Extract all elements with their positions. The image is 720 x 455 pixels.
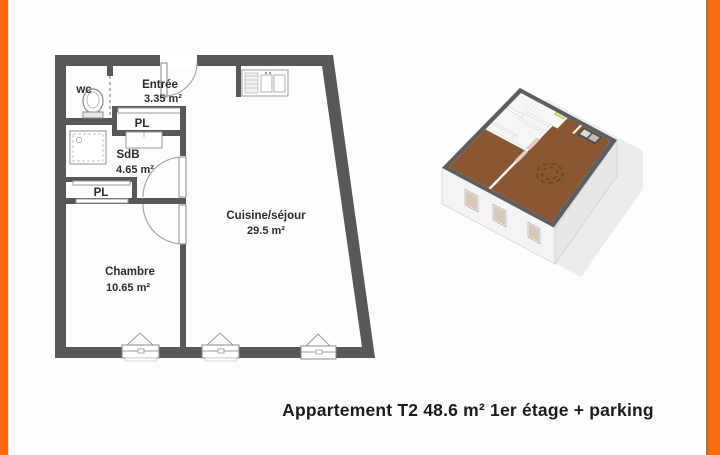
room-label-chambre: Chambre <box>105 266 155 278</box>
floor-plan-3d <box>442 88 643 277</box>
window <box>301 334 336 359</box>
sdb-door-leaf <box>179 157 186 197</box>
room-area-sdb: 4.65 m² <box>116 164 154 176</box>
kitchen-stub-wall <box>236 66 241 97</box>
kitchen-sink-icon <box>242 70 288 96</box>
floor-plan-2d: wc Entrée 3.35 m² PL SdB 4.65 m² PL Cuis… <box>55 54 375 361</box>
pl1-closet-door <box>118 108 182 113</box>
room-label-cuisine: Cuisine/séjour <box>226 210 306 222</box>
wc-bottom-wall <box>66 118 113 125</box>
washbasin-icon <box>126 132 162 148</box>
room-label-sdb: SdB <box>117 149 140 161</box>
floor-plan-figure: wc Entrée 3.35 m² PL SdB 4.65 m² PL Cuis… <box>0 0 720 455</box>
room-label-pl2: PL <box>94 187 109 199</box>
pl2-closet-rail <box>73 181 130 185</box>
room-label-wc: wc <box>75 84 92 96</box>
chambre-door-leaf <box>179 205 186 244</box>
main-vertical-wall-top <box>180 106 186 156</box>
pl1-left-wall <box>112 106 117 136</box>
window <box>122 333 159 361</box>
window <box>202 333 239 361</box>
wc-partition-wall <box>107 66 113 76</box>
shower-icon <box>70 131 106 164</box>
room-area-cuisine: 29.5 m² <box>247 225 285 237</box>
chambre-door-arc <box>143 204 183 244</box>
room-area-entree: 3.35 m² <box>144 93 182 105</box>
room-label-entree: Entrée <box>142 79 178 91</box>
listing-image: wc Entrée 3.35 m² PL SdB 4.65 m² PL Cuis… <box>0 0 720 455</box>
main-vertical-wall-bottom <box>180 244 186 347</box>
pl2-closet-door <box>76 199 128 203</box>
caption: Appartement T2 48.6 m² 1er étage + parki… <box>258 400 678 421</box>
room-label-pl1: PL <box>135 118 150 130</box>
room-area-chambre: 10.65 m² <box>106 282 150 294</box>
sdb-door-arc <box>143 157 183 197</box>
